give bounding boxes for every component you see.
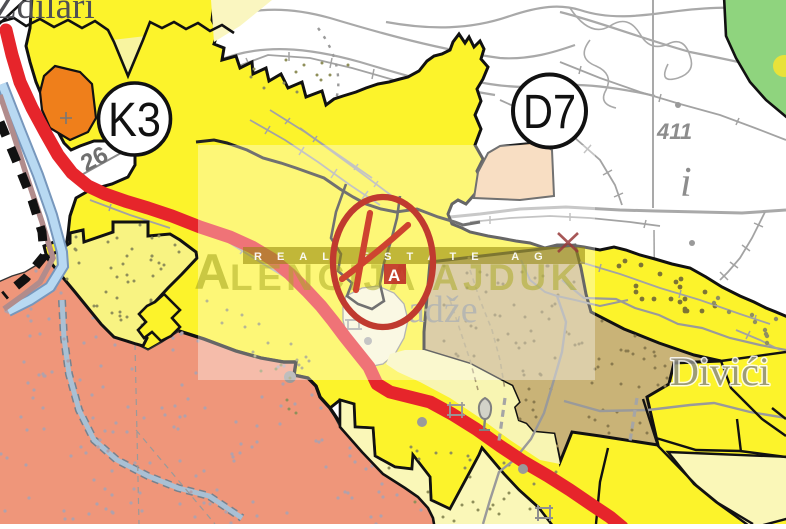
- svg-text:Zdilari: Zdilari: [0, 0, 95, 27]
- svg-text:411: 411: [656, 119, 692, 144]
- svg-text:K3: K3: [108, 94, 161, 147]
- svg-text:A: A: [388, 266, 400, 285]
- svg-text:A: A: [194, 244, 230, 300]
- svg-text:Divići: Divići: [670, 349, 770, 394]
- svg-text:i: i: [680, 160, 692, 206]
- svg-text:D7: D7: [523, 86, 576, 139]
